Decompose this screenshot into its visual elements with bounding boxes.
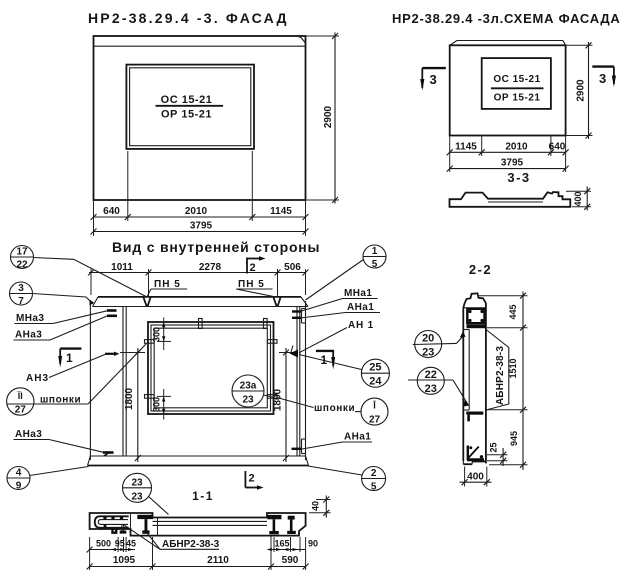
- svg-text:500: 500: [96, 539, 111, 549]
- svg-text:шпонки: шпонки: [314, 403, 355, 414]
- svg-text:2110: 2110: [207, 555, 229, 566]
- svg-text:23: 23: [422, 347, 434, 359]
- svg-text:МНа1: МНа1: [344, 288, 372, 299]
- svg-text:2-2: 2-2: [469, 262, 492, 277]
- svg-text:2900: 2900: [576, 79, 587, 102]
- svg-text:1: 1: [372, 246, 378, 257]
- svg-text:2010: 2010: [185, 206, 208, 217]
- svg-text:Ī: Ī: [372, 401, 376, 411]
- svg-text:1: 1: [66, 351, 73, 365]
- svg-text:25: 25: [489, 442, 499, 452]
- svg-text:1145: 1145: [455, 142, 477, 153]
- svg-text:3: 3: [599, 71, 606, 86]
- svg-text:90: 90: [308, 539, 318, 549]
- svg-text:ОР 15-21: ОР 15-21: [494, 93, 541, 104]
- svg-text:22: 22: [425, 369, 437, 381]
- svg-text:АНа1: АНа1: [347, 302, 374, 313]
- svg-text:400: 400: [467, 472, 484, 483]
- svg-text:300: 300: [152, 327, 162, 342]
- svg-text:ОР 15-21: ОР 15-21: [161, 109, 212, 121]
- svg-text:Вид с внутренней стороны: Вид с внутренней стороны: [112, 239, 320, 255]
- svg-text:1510: 1510: [508, 358, 518, 378]
- svg-text:23: 23: [131, 478, 143, 489]
- svg-text:27: 27: [369, 415, 381, 426]
- svg-text:ОС 15-21: ОС 15-21: [161, 94, 213, 106]
- svg-text:20: 20: [422, 333, 434, 345]
- svg-text:2900: 2900: [323, 105, 334, 128]
- svg-text:40: 40: [311, 501, 321, 511]
- svg-text:95: 95: [115, 539, 125, 549]
- svg-text:506: 506: [284, 262, 301, 273]
- svg-text:АНа3: АНа3: [15, 330, 42, 341]
- svg-text:3795: 3795: [501, 158, 524, 169]
- svg-text:23: 23: [242, 395, 254, 406]
- svg-text:23: 23: [131, 492, 143, 503]
- svg-text:АН3: АН3: [26, 373, 49, 384]
- svg-text:17: 17: [16, 247, 28, 258]
- svg-text:25: 25: [369, 362, 381, 374]
- svg-text:МНа3: МНа3: [16, 313, 44, 324]
- svg-text:НР2-38.29.4 -3л.СХЕМА ФАСАДА: НР2-38.29.4 -3л.СХЕМА ФАСАДА: [392, 11, 621, 26]
- svg-text:АН 1: АН 1: [348, 320, 374, 331]
- svg-text:2278: 2278: [199, 262, 222, 273]
- svg-text:1800: 1800: [273, 388, 284, 411]
- svg-text:ПН 5: ПН 5: [238, 279, 265, 290]
- svg-text:1011: 1011: [111, 262, 133, 273]
- svg-text:300: 300: [152, 397, 162, 412]
- svg-text:1-1: 1-1: [192, 489, 214, 503]
- svg-text:1095: 1095: [113, 555, 136, 566]
- svg-text:1145: 1145: [270, 206, 292, 217]
- svg-text:3795: 3795: [190, 221, 213, 232]
- svg-text:3: 3: [18, 283, 24, 294]
- svg-text:22: 22: [16, 260, 28, 271]
- svg-text:27: 27: [15, 405, 27, 416]
- svg-text:445: 445: [508, 304, 518, 319]
- svg-text:3: 3: [430, 72, 437, 87]
- svg-text:165: 165: [274, 539, 289, 549]
- svg-text:23а: 23а: [240, 381, 257, 392]
- svg-text:590: 590: [282, 555, 299, 566]
- svg-text:640: 640: [103, 206, 120, 217]
- svg-text:3-3: 3-3: [507, 170, 530, 185]
- svg-text:4: 4: [16, 468, 22, 479]
- svg-text:5: 5: [372, 259, 378, 270]
- svg-text:2010: 2010: [505, 142, 528, 153]
- svg-text:АБНР2-38-3: АБНР2-38-3: [162, 539, 220, 550]
- svg-text:АНа3: АНа3: [15, 429, 42, 440]
- svg-text:45: 45: [126, 539, 136, 549]
- svg-text:2: 2: [371, 468, 377, 479]
- svg-text:НР2-38.29.4 -3. ФАСАД: НР2-38.29.4 -3. ФАСАД: [88, 10, 289, 26]
- svg-text:1800: 1800: [124, 387, 135, 410]
- svg-text:АБНР2-38-3: АБНР2-38-3: [495, 346, 506, 405]
- svg-text:2: 2: [249, 473, 255, 485]
- svg-text:ÏΙ: ÏΙ: [17, 391, 23, 401]
- svg-text:2: 2: [250, 262, 256, 274]
- svg-text:9: 9: [16, 481, 22, 492]
- svg-text:24: 24: [369, 376, 382, 388]
- svg-text:5: 5: [371, 482, 377, 493]
- svg-text:7: 7: [18, 296, 24, 307]
- svg-text:945: 945: [509, 431, 519, 446]
- svg-text:ПН 5: ПН 5: [154, 279, 181, 290]
- svg-text:640: 640: [549, 142, 566, 153]
- svg-text:АНа1: АНа1: [344, 432, 371, 443]
- svg-text:400: 400: [573, 191, 583, 206]
- svg-text:ОС 15-21: ОС 15-21: [493, 74, 540, 85]
- svg-text:23: 23: [425, 383, 437, 395]
